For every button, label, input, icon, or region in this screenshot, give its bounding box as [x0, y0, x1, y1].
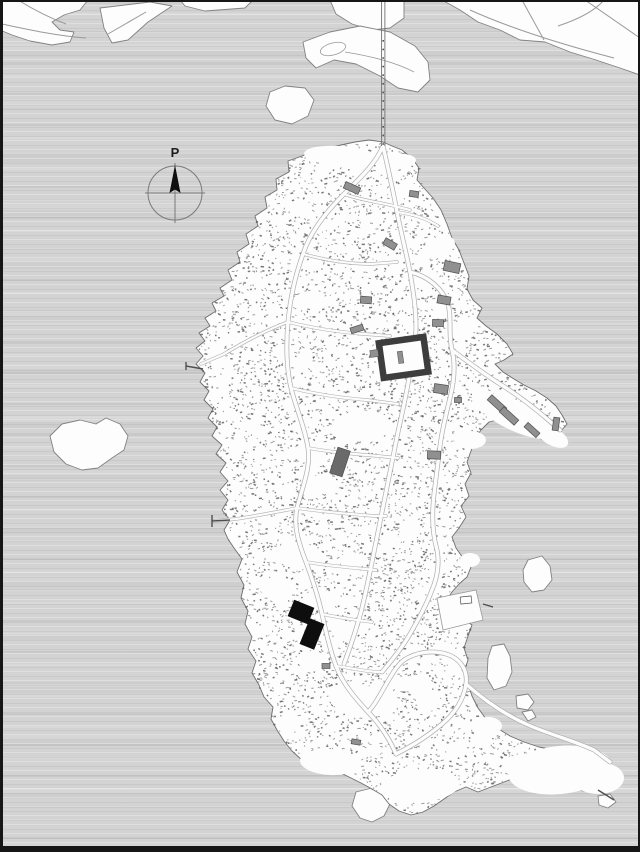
clearing [298, 291, 326, 309]
mainland-top-right [442, 0, 640, 75]
site-plan-page: P [0, 0, 640, 852]
building [351, 739, 361, 745]
clearing [416, 692, 440, 708]
north-landing-shape [330, 0, 404, 30]
mainland-shape [0, 0, 88, 45]
clearing [572, 762, 624, 794]
east-island-shape [523, 556, 552, 592]
building [360, 296, 371, 304]
west-island-shape [50, 418, 128, 470]
island-map: P [0, 0, 640, 852]
east-island-shape [487, 644, 512, 690]
north-arrow: P [145, 145, 205, 223]
building [433, 384, 448, 395]
east-islet-shape [522, 710, 536, 721]
north-needle [170, 165, 181, 193]
north-arrow-label: P [171, 145, 180, 160]
dock [212, 520, 230, 521]
clearing [260, 577, 296, 599]
mainland-top-left [0, 0, 253, 45]
clearing [380, 533, 400, 547]
mainland-wedge [100, 2, 172, 43]
building [460, 596, 472, 604]
building [427, 451, 440, 459]
building [432, 319, 443, 326]
building [322, 664, 330, 669]
dock [483, 604, 493, 607]
bridge-landing-islands [266, 0, 430, 124]
mainland-strip [180, 0, 253, 11]
courtyard-ring [379, 337, 428, 378]
east-islet-shape [516, 694, 534, 710]
building [455, 398, 462, 403]
clearing [460, 553, 480, 567]
clearing [278, 714, 302, 730]
courtyard-annex [370, 349, 379, 357]
round-islet-shape [266, 86, 314, 124]
clearing [402, 675, 430, 693]
clearing [288, 200, 312, 216]
building [409, 190, 419, 197]
clearing [454, 431, 486, 449]
clearing [306, 475, 338, 493]
curved-island-shape [303, 26, 430, 92]
clearing [474, 717, 502, 735]
